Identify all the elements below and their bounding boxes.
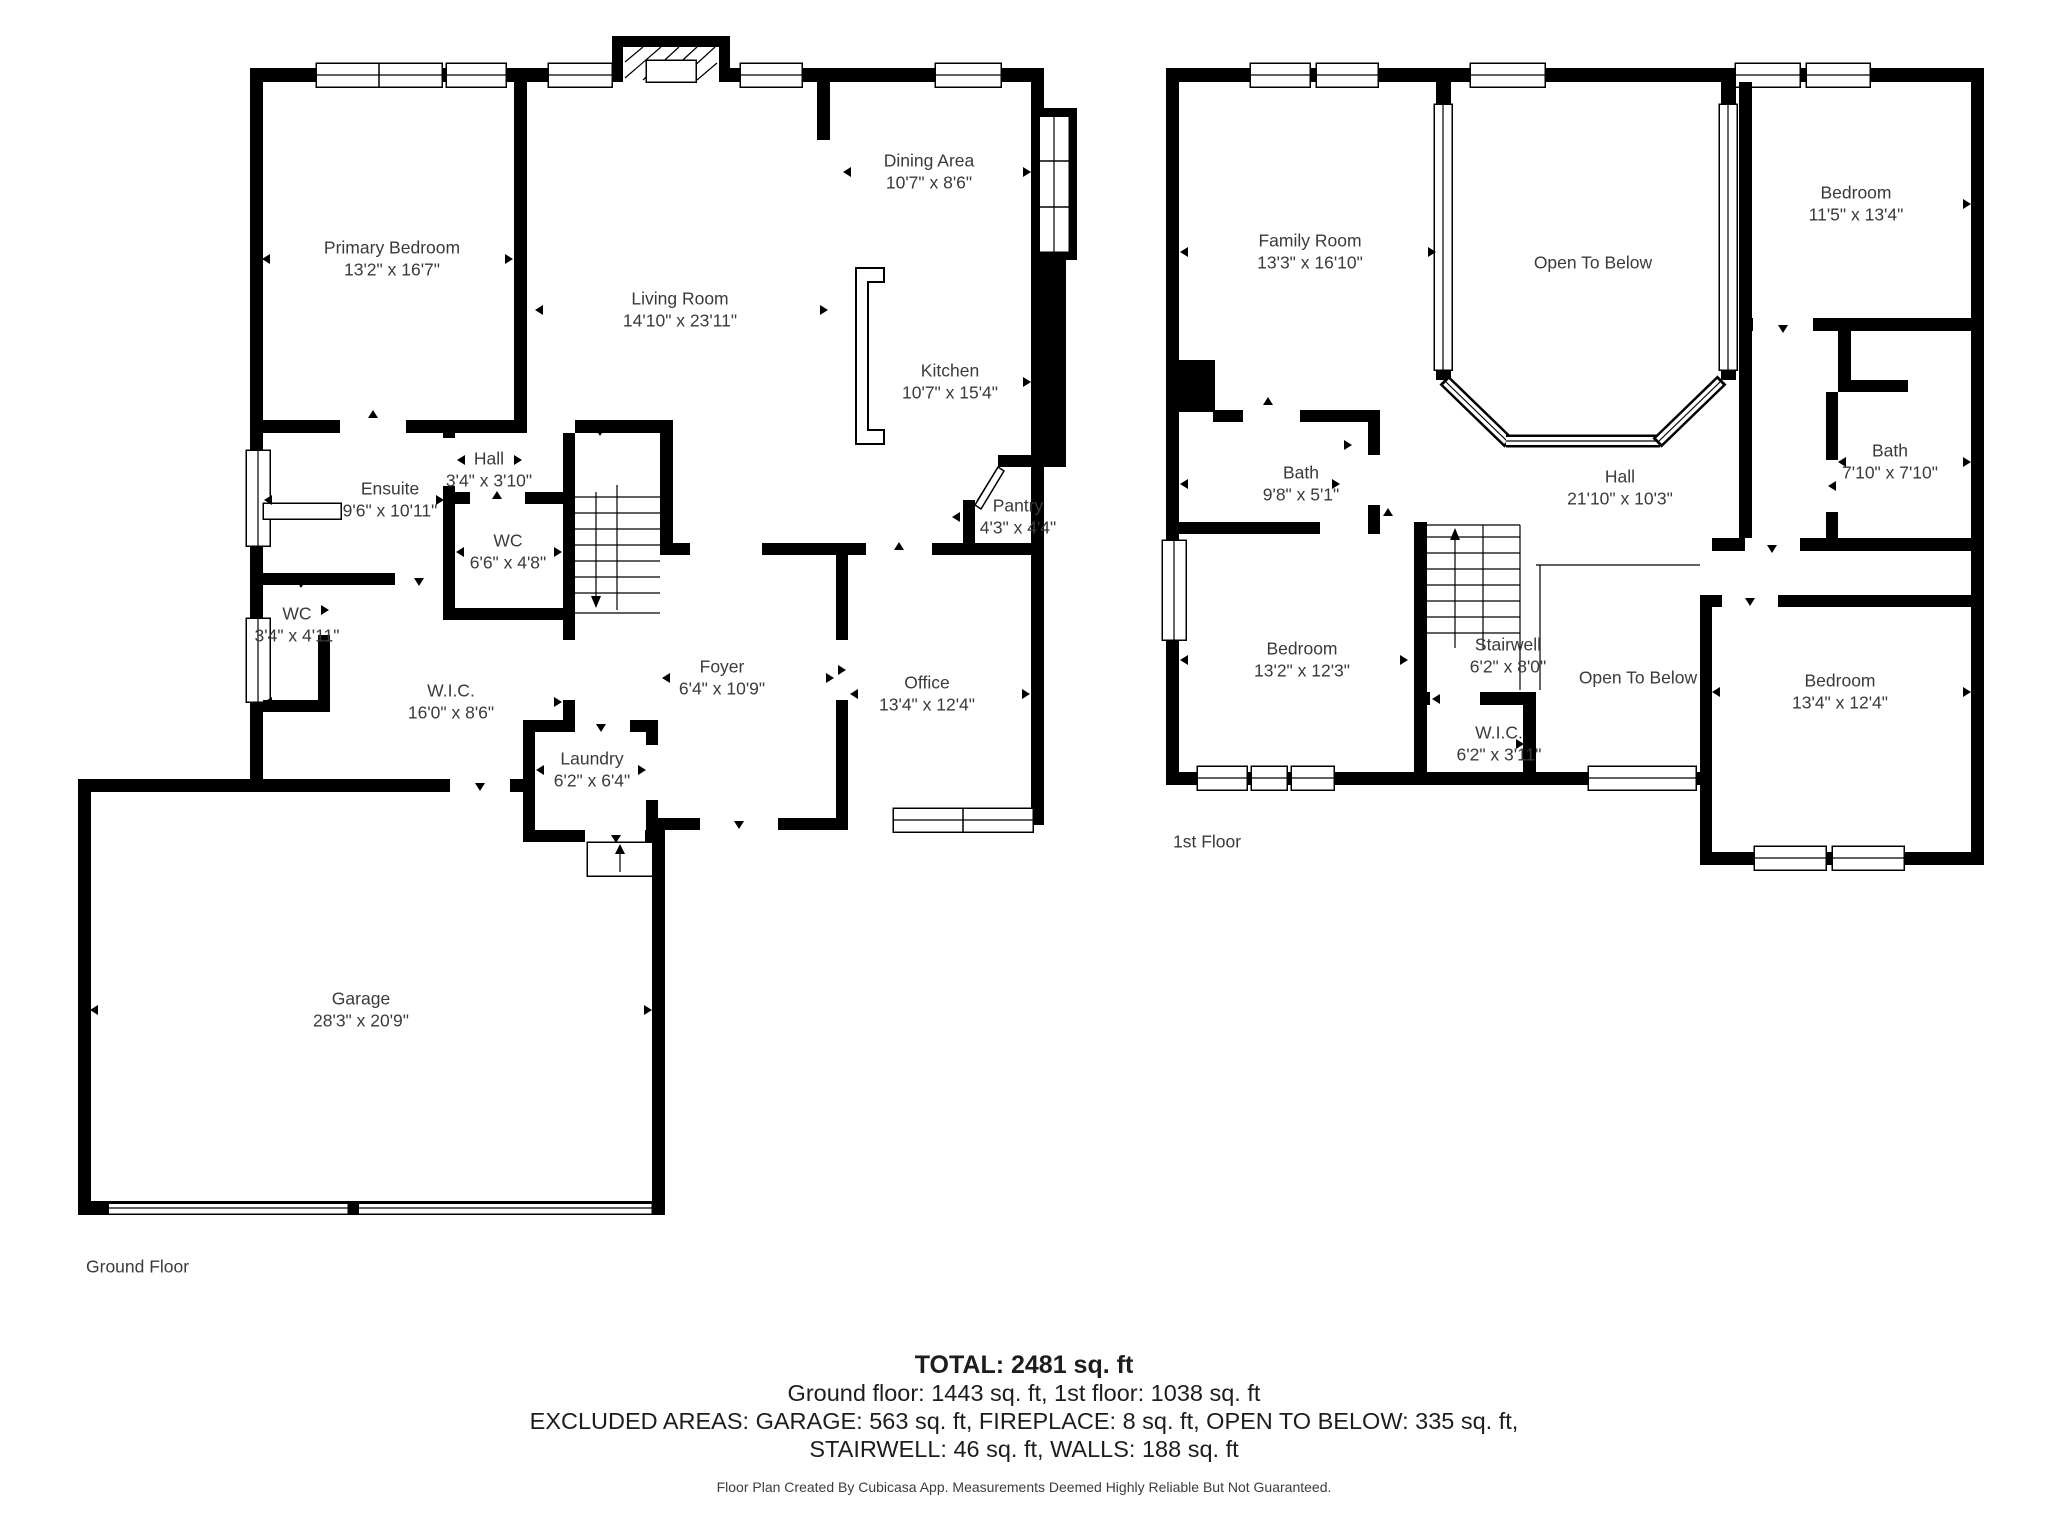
room-label-foyer: Foyer6'4" x 10'9": [679, 657, 765, 700]
room-label-hall-ground: Hall3'4" x 3'10": [446, 449, 532, 492]
room-label-bath-right: Bath7'10" x 7'10": [1842, 441, 1938, 484]
room-label-stairwell: Stairwell6'2" x 8'0": [1470, 635, 1547, 678]
excluded-areas-text: EXCLUDED AREAS: GARAGE: 563 sq. ft, FIRE…: [0, 1407, 2048, 1435]
room-label-office: Office13'4" x 12'4": [879, 673, 975, 716]
room-label-kitchen: Kitchen10'7" x 15'4": [902, 361, 998, 404]
room-label-bedroom-bottom-right: Bedroom13'4" x 12'4": [1792, 671, 1888, 714]
room-label-wc-center: WC6'6" x 4'8": [470, 531, 547, 574]
room-label-laundry: Laundry6'2" x 6'4": [554, 749, 631, 792]
room-label-primary-bedroom: Primary Bedroom13'2" x 16'7": [324, 238, 460, 281]
disclaimer-text: Floor Plan Created By Cubicasa App. Meas…: [0, 1479, 2048, 1495]
room-label-bedroom-top-right: Bedroom11'5" x 13'4": [1809, 183, 1904, 226]
room-label-hall-first: Hall21'10" x 10'3": [1567, 467, 1673, 510]
room-label-dining-area: Dining Area10'7" x 8'6": [884, 151, 974, 194]
first-floor-label: 1st Floor: [1173, 832, 1241, 853]
room-label-open-to-below-1: Open To Below: [1534, 252, 1652, 274]
room-label-garage: Garage28'3" x 20'9": [313, 989, 409, 1032]
total-area-text: TOTAL: 2481 sq. ft: [0, 1351, 2048, 1379]
room-label-wc-left: WC3'4" x 4'11": [255, 604, 340, 647]
room-label-open-to-below-2: Open To Below: [1579, 667, 1697, 689]
floor-areas-text: Ground floor: 1443 sq. ft, 1st floor: 10…: [0, 1379, 2048, 1407]
room-label-bedroom-left: Bedroom13'2" x 12'3": [1254, 639, 1350, 682]
ground-floor-plan: [78, 36, 1077, 1215]
room-label-family-room: Family Room13'3" x 16'10": [1257, 231, 1363, 274]
room-label-bath-left: Bath9'8" x 5'1": [1263, 463, 1340, 506]
room-label-ensuite: Ensuite9'6" x 10'11": [343, 479, 438, 522]
room-label-living-room: Living Room14'10" x 23'11": [623, 289, 737, 332]
floor-plan-canvas: Primary Bedroom13'2" x 16'7" Living Room…: [0, 0, 2048, 1536]
ground-floor-label: Ground Floor: [86, 1257, 189, 1278]
room-label-wic-ground: W.I.C.16'0" x 8'6": [408, 681, 494, 724]
floor-plan-drawing: [0, 0, 2048, 1536]
excluded-areas-text-2: STAIRWELL: 46 sq. ft, WALLS: 188 sq. ft: [0, 1435, 2048, 1463]
room-label-pantry: Pantry4'3" x 4'4": [980, 496, 1057, 539]
room-label-wic-first: W.I.C.6'2" x 3'11": [1457, 723, 1542, 766]
area-summary: TOTAL: 2481 sq. ft Ground floor: 1443 sq…: [0, 1351, 2048, 1495]
